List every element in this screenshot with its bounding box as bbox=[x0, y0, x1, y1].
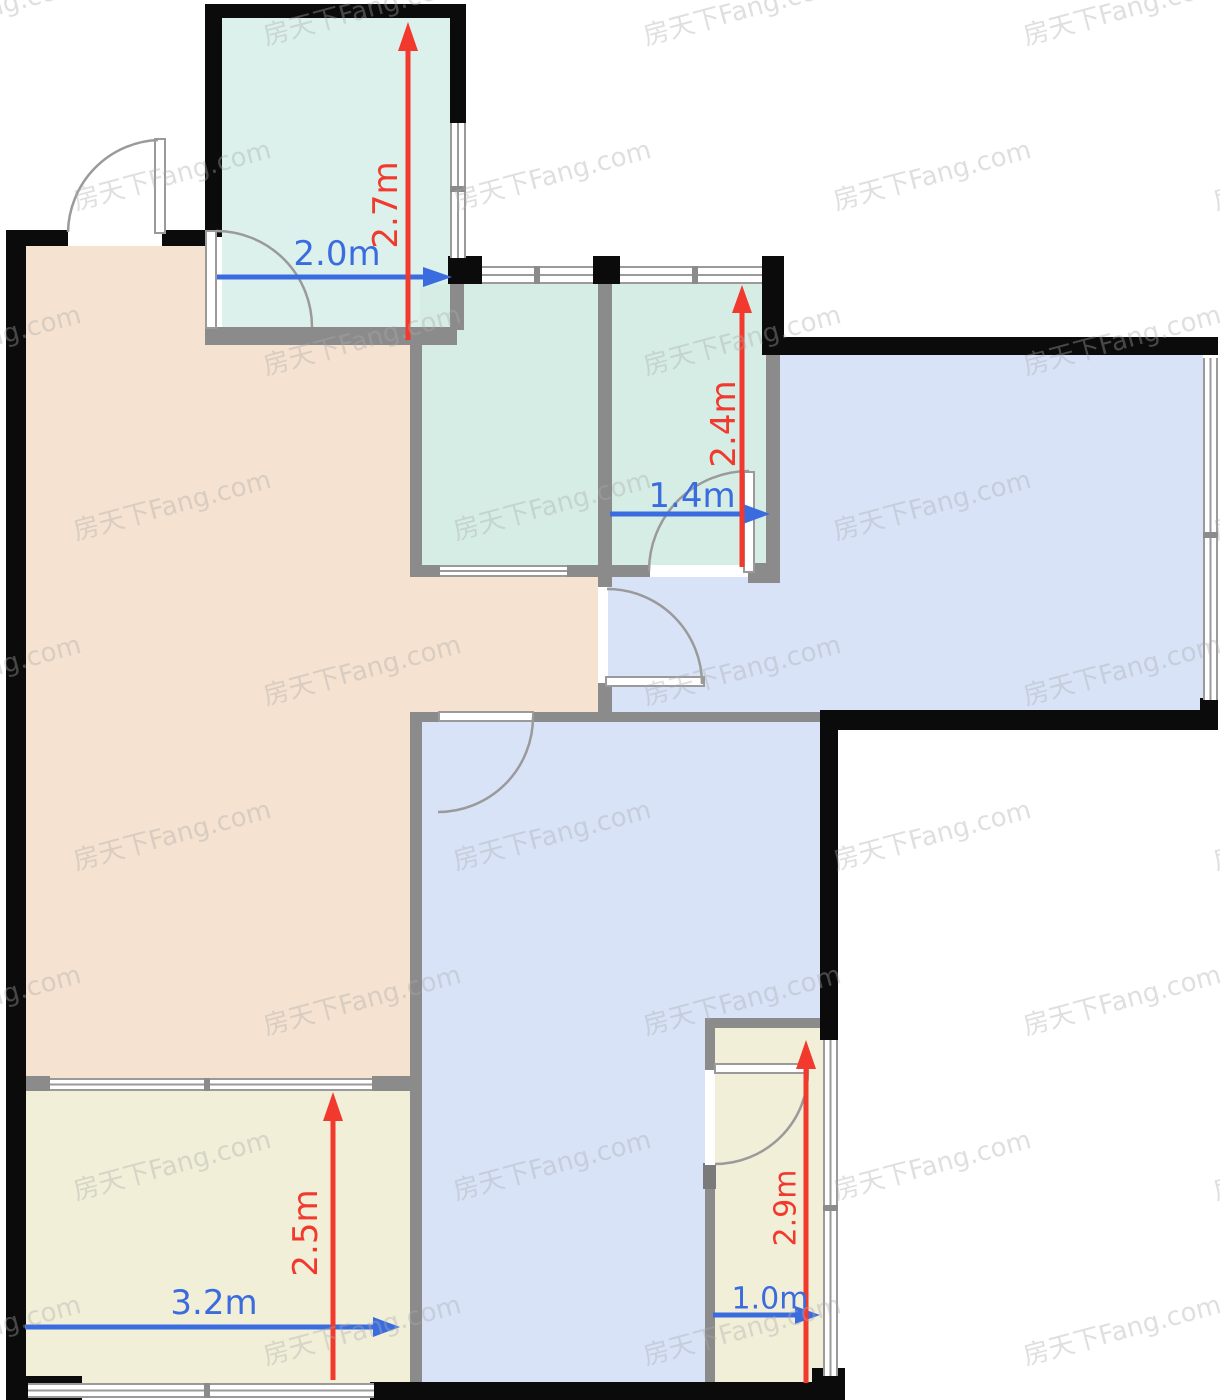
wall bbox=[766, 352, 780, 580]
living-area-fill bbox=[26, 246, 413, 1078]
watermark-text: 房天下Fang.com bbox=[449, 129, 655, 217]
wall bbox=[205, 4, 466, 18]
wall bbox=[820, 710, 838, 1040]
window bbox=[620, 266, 762, 284]
watermark-text: 房天下Fang.com bbox=[1209, 789, 1220, 877]
window-divider bbox=[204, 1078, 210, 1091]
wall bbox=[410, 712, 422, 1386]
sliding-partition bbox=[50, 1078, 372, 1091]
room-bottom-left-fill bbox=[26, 1088, 410, 1383]
wall bbox=[205, 327, 457, 345]
wall bbox=[372, 1076, 412, 1091]
wall bbox=[420, 565, 442, 577]
watermark-text: 房天下Fang.com bbox=[1209, 129, 1220, 217]
window bbox=[1203, 358, 1218, 700]
room-right-fill-ext bbox=[608, 577, 780, 712]
wall bbox=[762, 337, 1218, 355]
dim-label-height: 2.5m bbox=[286, 1189, 326, 1276]
window-divider bbox=[450, 186, 466, 192]
wall bbox=[820, 710, 1218, 730]
window bbox=[28, 1383, 374, 1398]
wall bbox=[448, 256, 482, 284]
wall bbox=[705, 1018, 823, 1028]
wall bbox=[705, 1165, 715, 1383]
watermark-text: 房天下Fang.com bbox=[0, 0, 85, 53]
watermark-text: 房天下Fang.com bbox=[829, 1119, 1035, 1207]
watermark-text: 房天下Fang.com bbox=[639, 0, 845, 53]
wall bbox=[598, 258, 612, 587]
watermark-text: 房天下Fang.com bbox=[1019, 954, 1220, 1042]
window-divider bbox=[692, 266, 698, 284]
window-divider bbox=[204, 1383, 210, 1398]
door-leaf bbox=[605, 676, 705, 687]
entry-door-leaf bbox=[154, 138, 166, 234]
dim-label-height: 2.7m bbox=[366, 161, 406, 248]
door-leaf bbox=[205, 230, 217, 329]
watermark-text: 房天下Fang.com bbox=[829, 129, 1035, 217]
wall bbox=[450, 282, 464, 330]
dim-label-width: 1.0m bbox=[732, 1282, 809, 1317]
hallway-fill bbox=[413, 577, 598, 712]
room-right-fill bbox=[780, 355, 1203, 712]
door-opening bbox=[705, 1070, 715, 1165]
window-divider bbox=[534, 266, 540, 284]
dim-label-width: 1.4m bbox=[648, 476, 735, 516]
pass-opening bbox=[440, 565, 567, 577]
dim-label-width: 3.2m bbox=[170, 1283, 257, 1323]
door-leaf bbox=[743, 471, 755, 573]
floor-plan: 2.0m 2.7m 1.4m 2.4m 3.2m 2.5m 1.0m 2.9m … bbox=[0, 0, 1220, 1400]
wall bbox=[6, 230, 26, 1400]
door-opening bbox=[650, 565, 748, 577]
wall bbox=[450, 4, 466, 125]
wall bbox=[205, 4, 222, 237]
door-leaf bbox=[438, 711, 534, 722]
door-leaf bbox=[714, 1063, 809, 1074]
window-divider bbox=[1203, 532, 1218, 538]
wall bbox=[703, 1163, 716, 1189]
watermark-text: 房天下Fang.com bbox=[1209, 1119, 1220, 1207]
watermark-text: 房天下Fang.com bbox=[1019, 0, 1220, 53]
wall bbox=[410, 345, 422, 577]
wall bbox=[593, 256, 620, 284]
watermark-text: 房天下Fang.com bbox=[1019, 1284, 1220, 1372]
wall bbox=[370, 1382, 845, 1400]
dim-label-height: 2.4m bbox=[704, 380, 744, 467]
room-top-left-fill bbox=[222, 18, 450, 327]
dim-label-height: 2.9m bbox=[769, 1170, 804, 1247]
door-opening bbox=[68, 230, 162, 246]
wall bbox=[162, 230, 207, 246]
door-opening bbox=[598, 587, 608, 683]
watermark-text: 房天下Fang.com bbox=[829, 789, 1035, 877]
wall bbox=[533, 712, 823, 722]
window-divider bbox=[823, 1205, 838, 1211]
